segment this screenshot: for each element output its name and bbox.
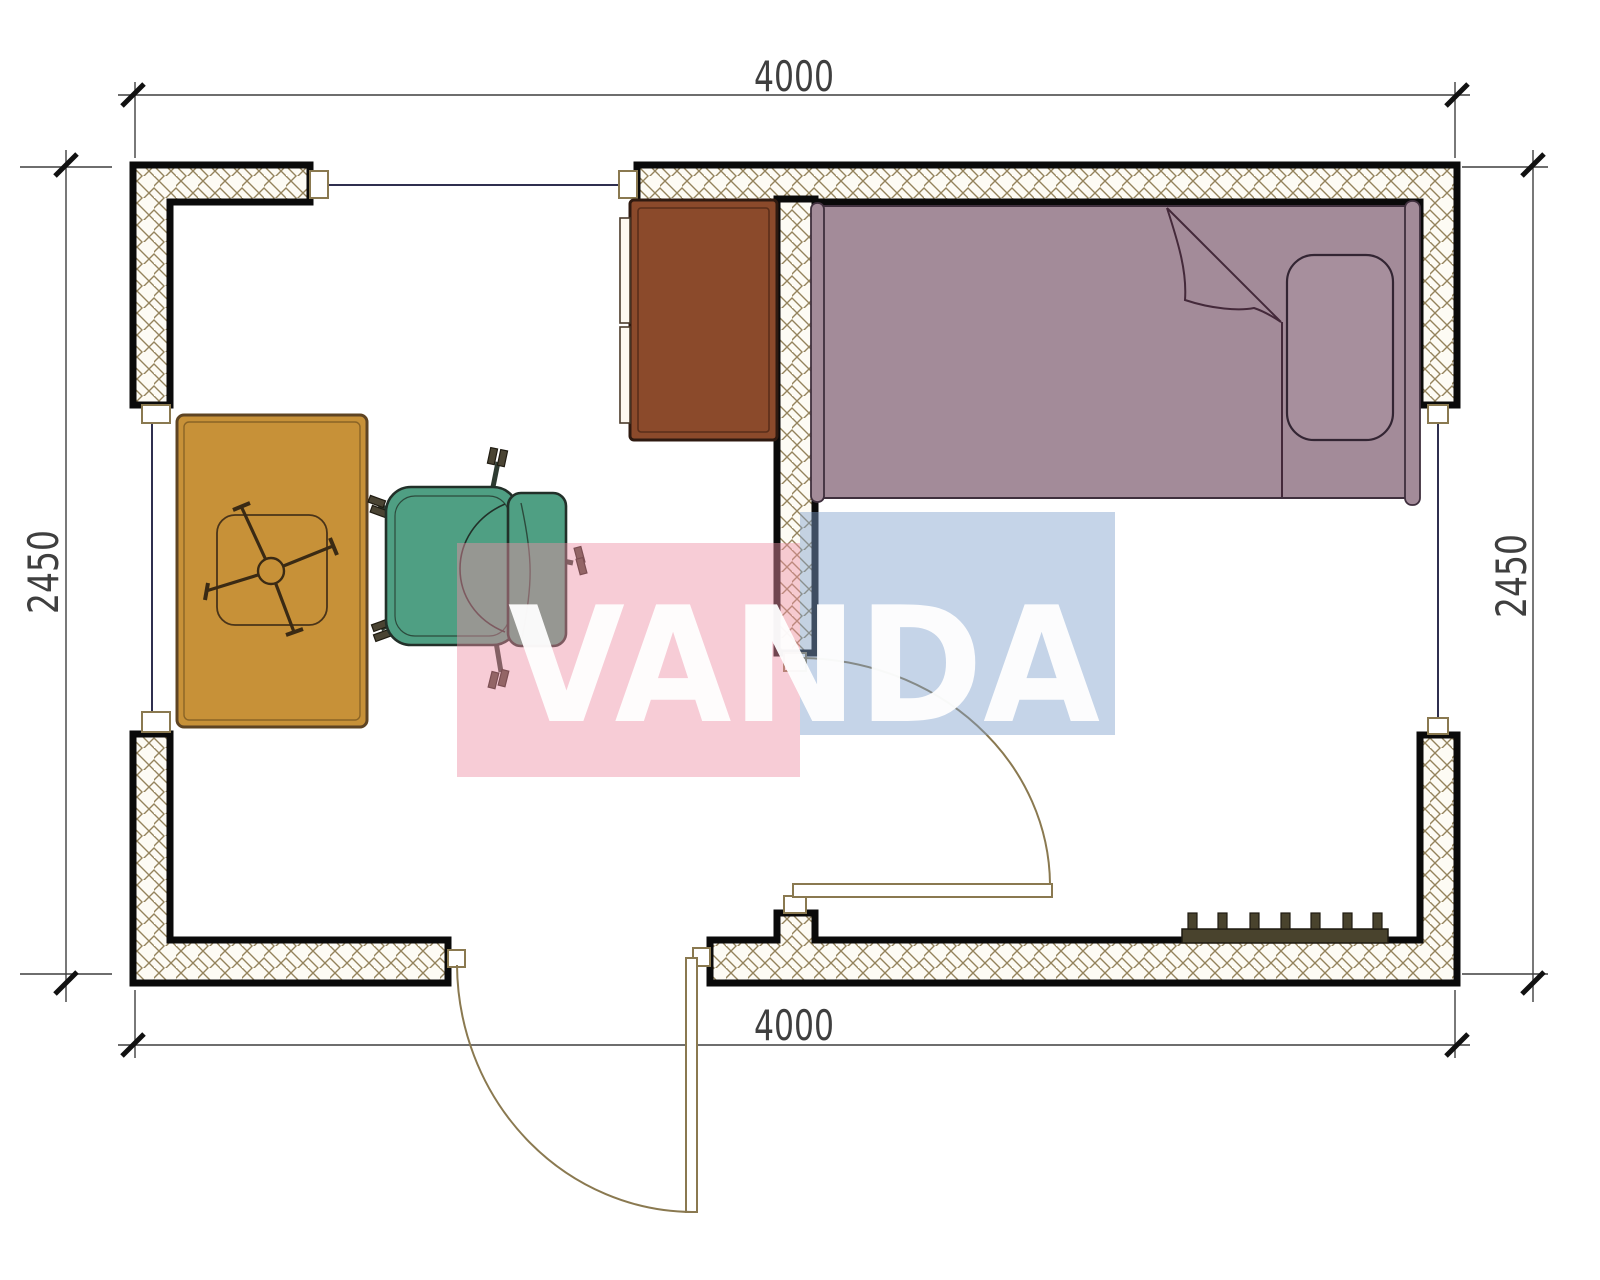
dim-text-bottom: 4000 xyxy=(754,1001,834,1050)
cabinet-door-edge xyxy=(620,218,630,323)
dim-text-right: 2450 xyxy=(1487,534,1536,618)
desk-table xyxy=(177,415,367,727)
bed-pillow xyxy=(1287,255,1393,440)
bed-rail-left xyxy=(811,203,824,502)
dim-text-top: 4000 xyxy=(754,52,834,101)
single-bed xyxy=(811,201,1420,505)
dim-text-left: 2450 xyxy=(19,530,68,614)
floor-plan-drawing: 4000 4000 2450 2450 xyxy=(0,0,1600,1280)
radiator xyxy=(1182,913,1388,943)
entry-door-swing-arc xyxy=(457,965,692,1212)
watermark-text: VANDA xyxy=(508,572,1100,759)
cabinet xyxy=(620,200,777,440)
cabinet-door-edge xyxy=(620,327,630,423)
entry-door xyxy=(457,958,697,1212)
floor-plan-page: 4000 4000 2450 2450 xyxy=(0,0,1600,1280)
wall-bottom-left-L xyxy=(133,734,448,983)
bed-rail-right xyxy=(1405,201,1420,505)
interior-door-leaf xyxy=(793,884,1052,897)
entry-door-leaf xyxy=(686,958,697,1212)
wall-bottom-right-L xyxy=(710,735,1457,983)
watermark: VANDA xyxy=(457,512,1115,777)
wall-top-left-L xyxy=(133,165,310,405)
